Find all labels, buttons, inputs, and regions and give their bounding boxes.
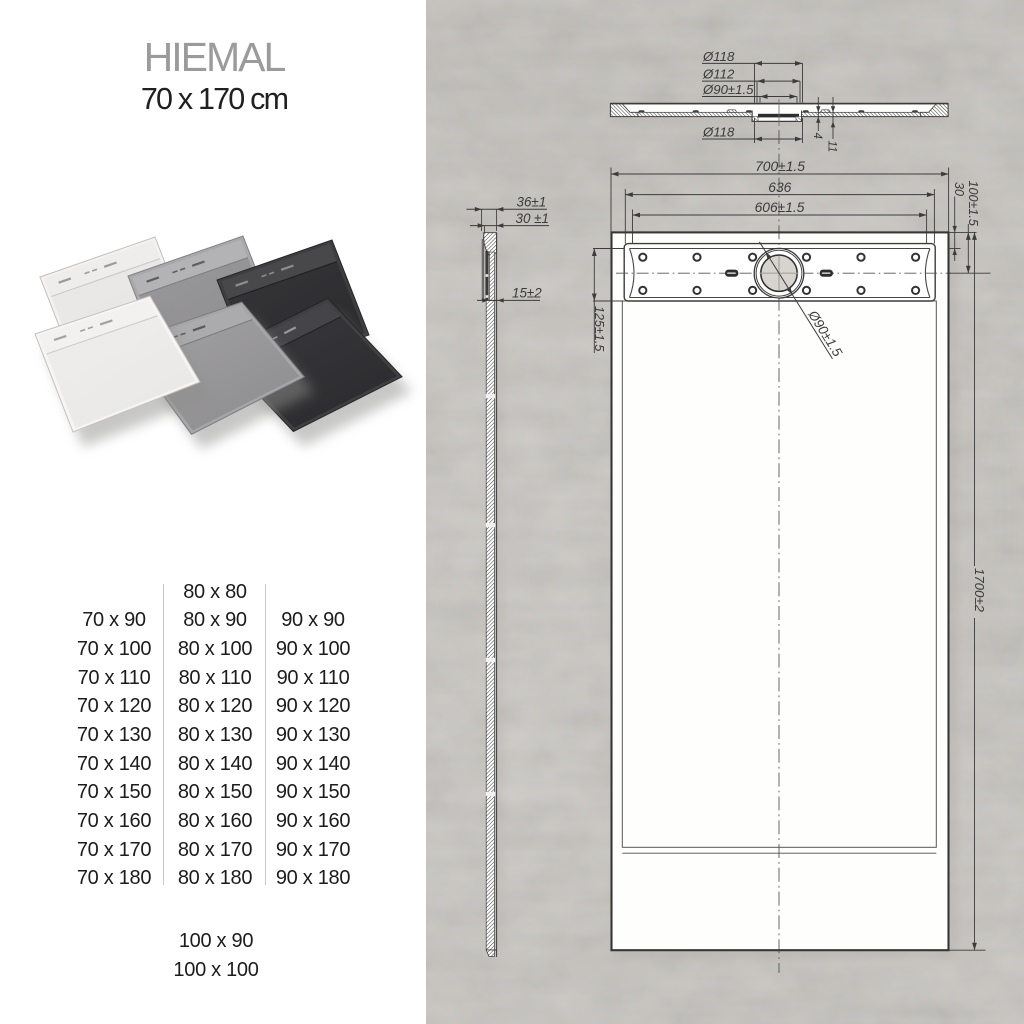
svg-text:4: 4 xyxy=(811,133,823,139)
svg-text:Ø112: Ø112 xyxy=(702,67,735,82)
svg-text:30: 30 xyxy=(952,182,966,196)
svg-text:Ø90±1.5: Ø90±1.5 xyxy=(702,82,754,97)
svg-text:100±1.5: 100±1.5 xyxy=(966,181,980,227)
svg-text:30 ±1: 30 ±1 xyxy=(516,211,549,226)
svg-text:15±2: 15±2 xyxy=(512,286,542,301)
svg-text:700±1.5: 700±1.5 xyxy=(755,159,805,174)
svg-text:125±1.5: 125±1.5 xyxy=(592,306,606,352)
svg-text:636: 636 xyxy=(768,180,791,195)
svg-text:1700±2: 1700±2 xyxy=(972,568,987,613)
svg-text:Ø118: Ø118 xyxy=(702,49,735,64)
svg-text:11: 11 xyxy=(826,141,838,153)
svg-text:Ø118: Ø118 xyxy=(702,125,735,140)
svg-text:606±1.5: 606±1.5 xyxy=(755,200,805,215)
svg-text:36±1: 36±1 xyxy=(517,195,547,210)
